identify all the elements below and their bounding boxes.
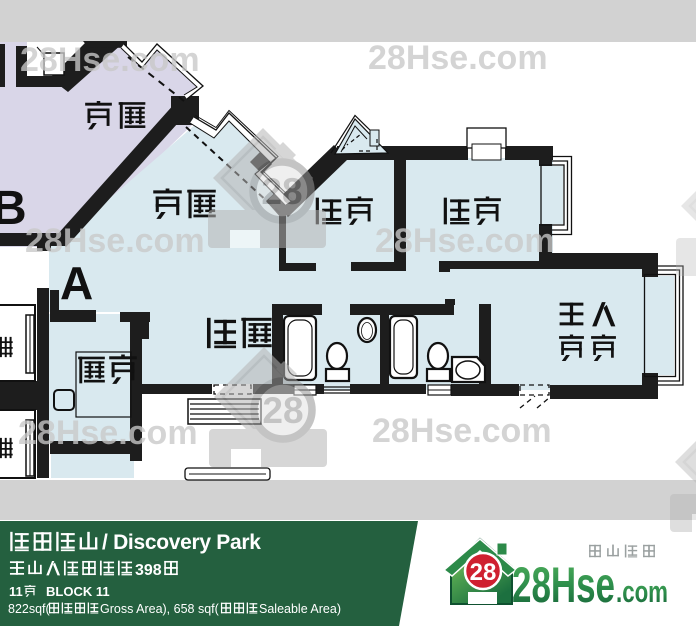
svg-text:A: A (60, 257, 93, 309)
svg-text:28Hse.com: 28Hse.com (375, 222, 555, 260)
svg-text:28Hse.com: 28Hse.com (372, 412, 552, 450)
svg-text:28: 28 (470, 559, 497, 586)
svg-text:28Hse: 28Hse (512, 557, 615, 613)
svg-text:398: 398 (135, 562, 162, 579)
svg-text:Saleable Area): Saleable Area) (259, 602, 341, 616)
svg-text:/ Discovery Park: / Discovery Park (102, 531, 261, 554)
svg-text:822sqf(: 822sqf( (8, 602, 51, 616)
svg-text:B: B (0, 182, 27, 235)
svg-text:28Hse.com: 28Hse.com (18, 414, 198, 452)
svg-text:28Hse.com: 28Hse.com (368, 39, 548, 77)
svg-text:BLOCK 11: BLOCK 11 (46, 584, 110, 599)
svg-text:11: 11 (9, 584, 23, 599)
svg-text:28Hse.com: 28Hse.com (20, 41, 200, 79)
svg-text:.com: .com (616, 574, 668, 609)
svg-text:Gross Area), 658 sqf(: Gross Area), 658 sqf( (100, 602, 220, 616)
svg-text:28Hse.com: 28Hse.com (25, 222, 205, 260)
